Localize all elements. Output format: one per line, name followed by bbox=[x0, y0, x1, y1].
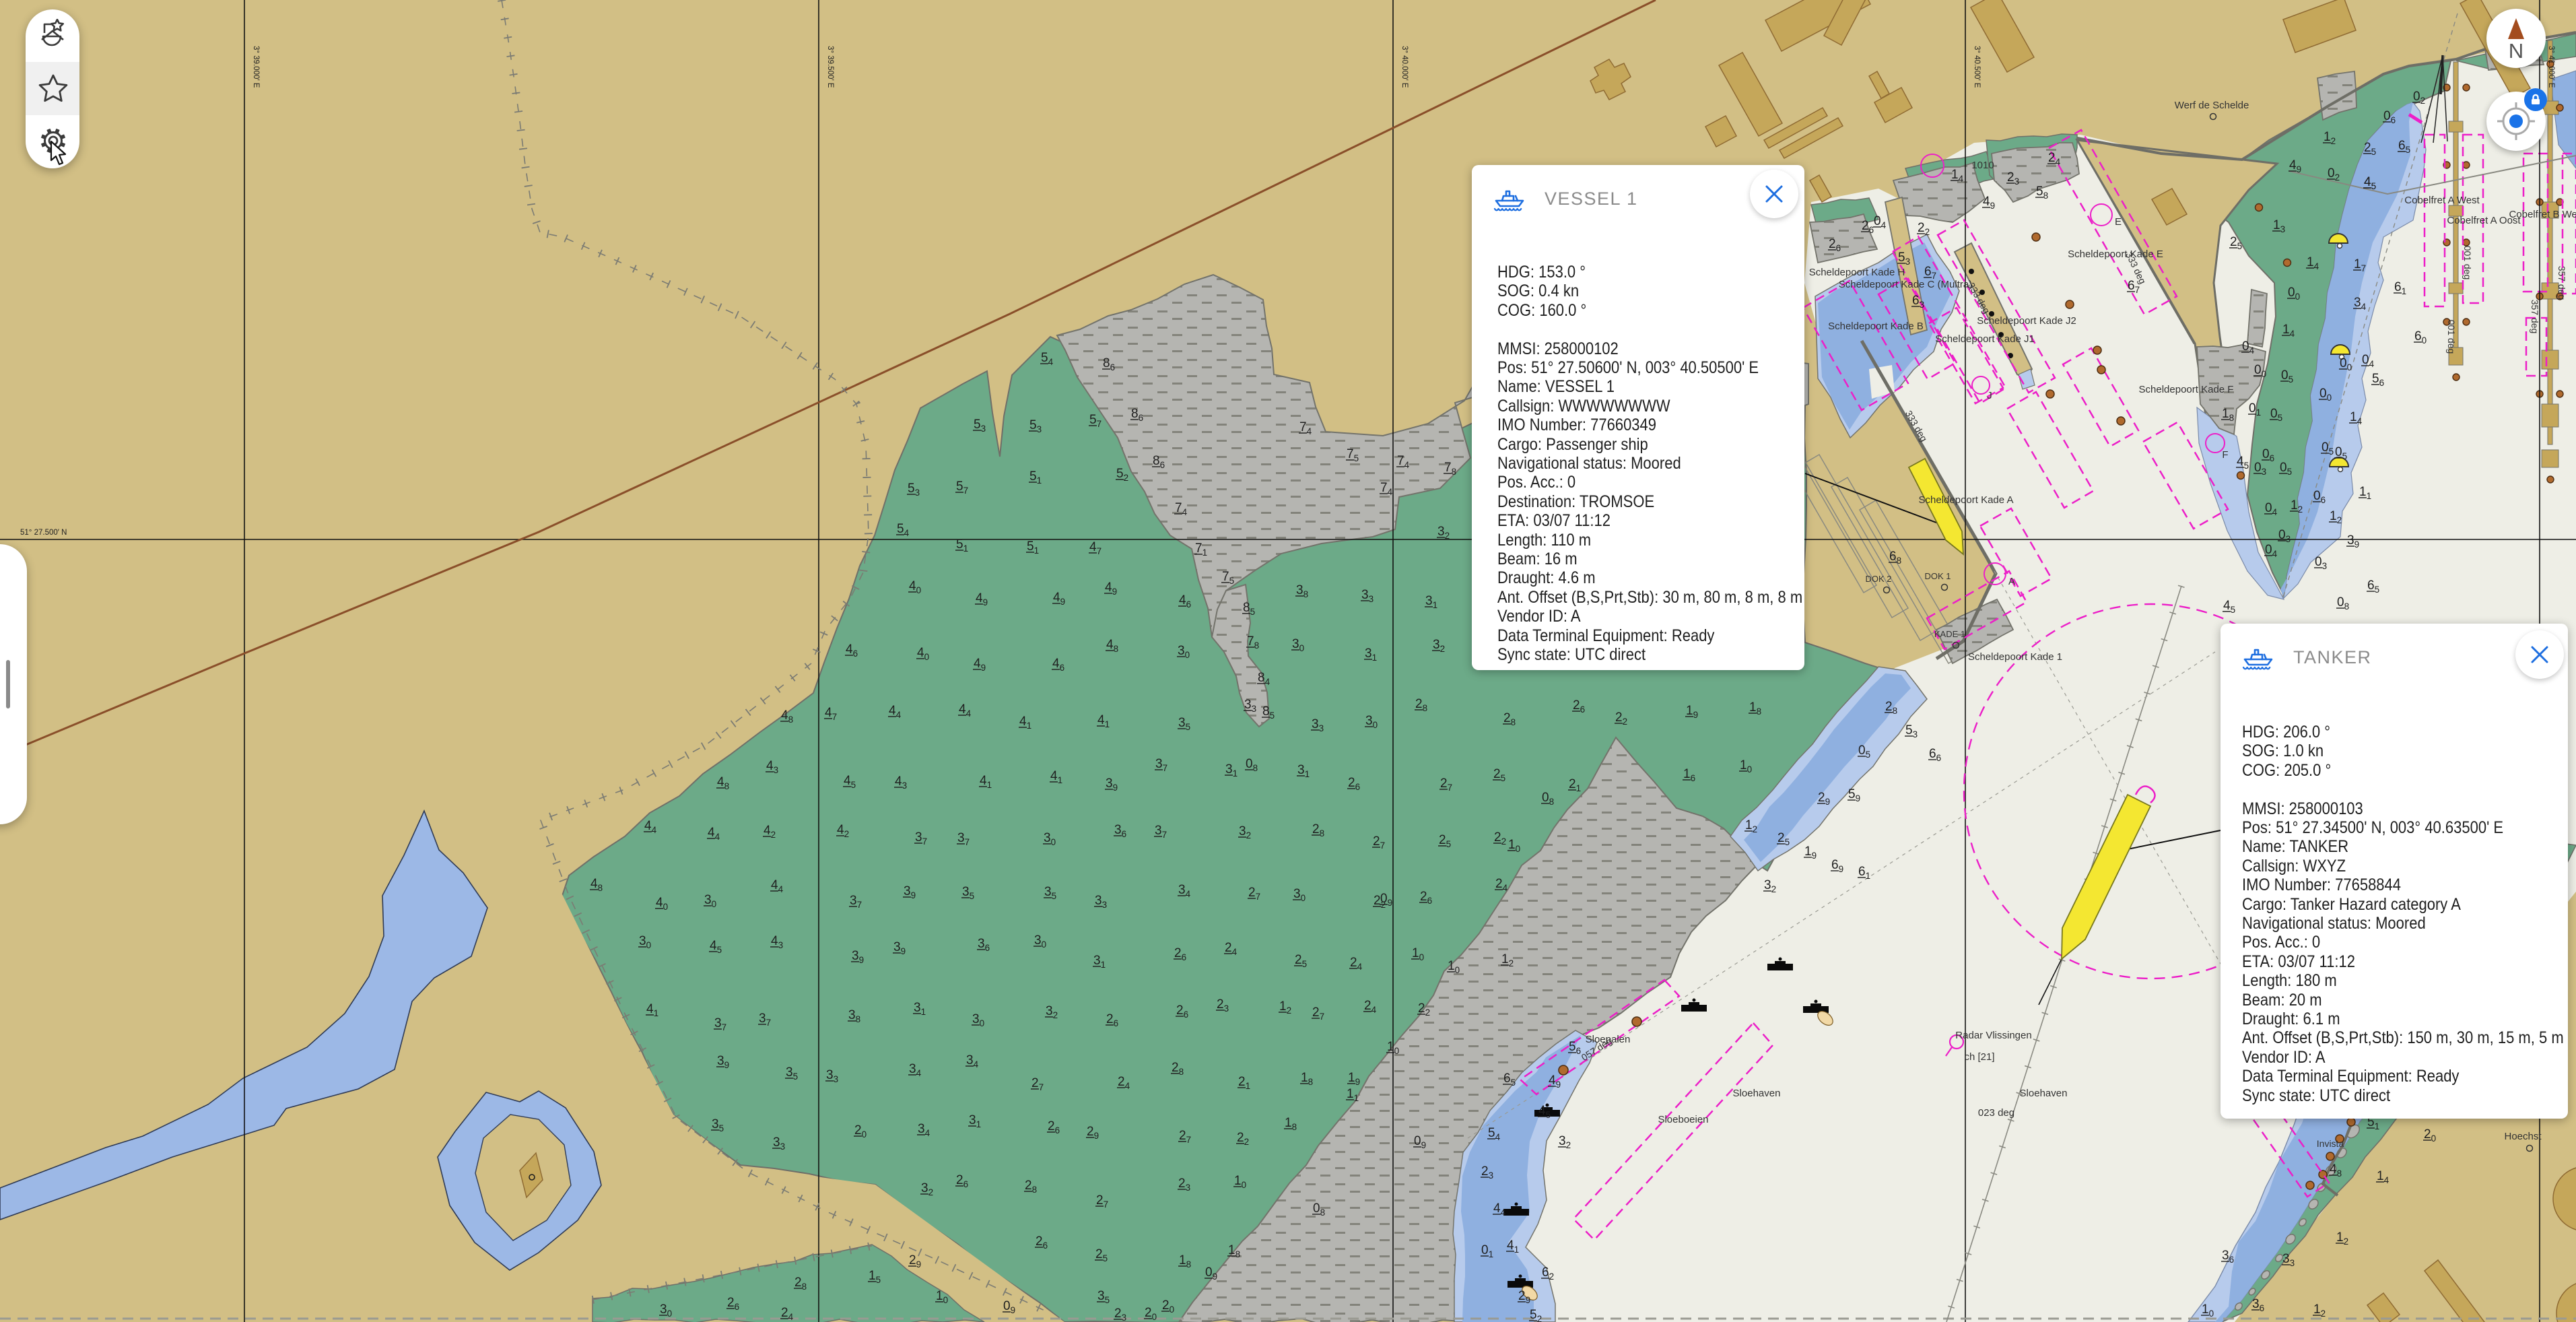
svg-text:Scheldepoort Kade A: Scheldepoort Kade A bbox=[1919, 494, 2014, 506]
svg-text:1010: 1010 bbox=[1971, 160, 1994, 171]
svg-text:DOK 1: DOK 1 bbox=[1924, 571, 1951, 581]
svg-text:357 deg: 357 deg bbox=[2556, 266, 2567, 300]
svg-text:A: A bbox=[2008, 576, 2015, 587]
svg-text:DOK 2: DOK 2 bbox=[1865, 574, 1891, 584]
svg-text:Scheldepoort Kade 1: Scheldepoort Kade 1 bbox=[1968, 651, 2062, 663]
svg-text:Scheldepoort Kade E: Scheldepoort Kade E bbox=[2068, 249, 2163, 260]
svg-text:Scheldepoort Kade J1: Scheldepoort Kade J1 bbox=[1935, 333, 2035, 345]
svg-text:001 deg: 001 deg bbox=[2462, 246, 2473, 280]
svg-text:E: E bbox=[2115, 216, 2122, 228]
svg-text:Hoechst: Hoechst bbox=[2504, 1131, 2542, 1142]
svg-text:Sloehaven: Sloehaven bbox=[2020, 1088, 2068, 1099]
svg-text:Cobelfret B West: Cobelfret B West bbox=[2509, 209, 2576, 220]
svg-text:Scheldepoort Kade B: Scheldepoort Kade B bbox=[1828, 321, 1924, 332]
svg-text:Invista: Invista bbox=[2317, 1138, 2344, 1149]
svg-text:3° 39.000′ E: 3° 39.000′ E bbox=[252, 46, 260, 88]
svg-text:3° 39.500′ E: 3° 39.500′ E bbox=[826, 46, 834, 88]
svg-text:Cobelfret A West: Cobelfret A West bbox=[2404, 195, 2480, 206]
svg-text:Radar Vlissingen: Radar Vlissingen bbox=[1955, 1030, 2031, 1041]
svg-text:357 deg: 357 deg bbox=[2530, 300, 2540, 334]
svg-text:001 deg: 001 deg bbox=[2446, 320, 2457, 354]
svg-text:3° 40.000′ E: 3° 40.000′ E bbox=[1400, 46, 1409, 88]
svg-text:KADE 1: KADE 1 bbox=[1934, 629, 1965, 639]
svg-text:Sloehaven: Sloehaven bbox=[1733, 1088, 1781, 1099]
svg-text:3° 40.500′ E: 3° 40.500′ E bbox=[1973, 46, 1981, 88]
svg-text:51° 27.500′ N: 51° 27.500′ N bbox=[20, 529, 67, 537]
svg-text:Scheldepoort Kade H: Scheldepoort Kade H bbox=[1809, 267, 1905, 278]
svg-text:Sloeboeien: Sloeboeien bbox=[1658, 1114, 1708, 1125]
svg-text:Scheldepoort Kade F: Scheldepoort Kade F bbox=[2139, 384, 2234, 395]
svg-text:ch [21]: ch [21] bbox=[1964, 1051, 1994, 1063]
svg-text:3° 41.000′ E: 3° 41.000′ E bbox=[2547, 46, 2555, 88]
svg-text:J: J bbox=[1987, 390, 1992, 401]
svg-text:F: F bbox=[2222, 449, 2228, 461]
svg-text:023 deg: 023 deg bbox=[1978, 1107, 2014, 1119]
svg-text:Werf de Schelde: Werf de Schelde bbox=[2175, 100, 2249, 111]
svg-text:Scheldepoort Kade J2: Scheldepoort Kade J2 bbox=[1977, 315, 2076, 327]
svg-text:Scheldepoort Kade C (Multra): Scheldepoort Kade C (Multra) bbox=[1839, 279, 1972, 290]
